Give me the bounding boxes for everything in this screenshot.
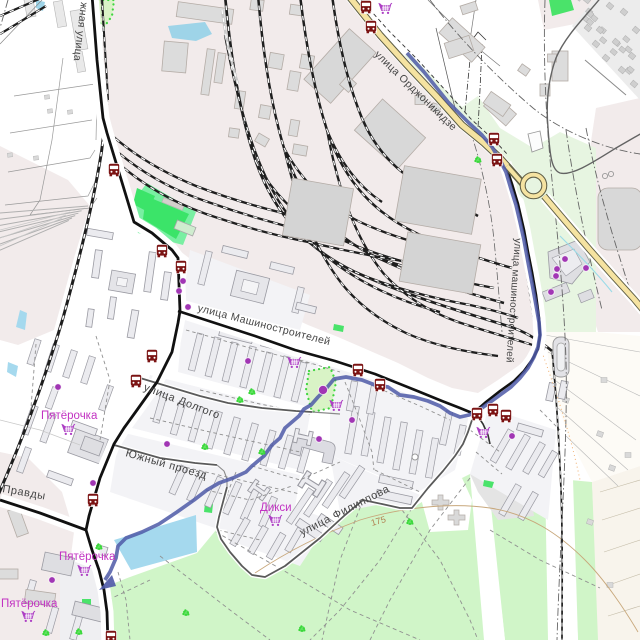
svg-text:Пятёрочка: Пятёрочка bbox=[1, 598, 58, 610]
svg-text:Пятёрочка: Пятёрочка bbox=[59, 551, 116, 563]
svg-text:Пятёрочка: Пятёрочка bbox=[41, 410, 98, 422]
svg-text:Дикси: Дикси bbox=[260, 502, 292, 514]
